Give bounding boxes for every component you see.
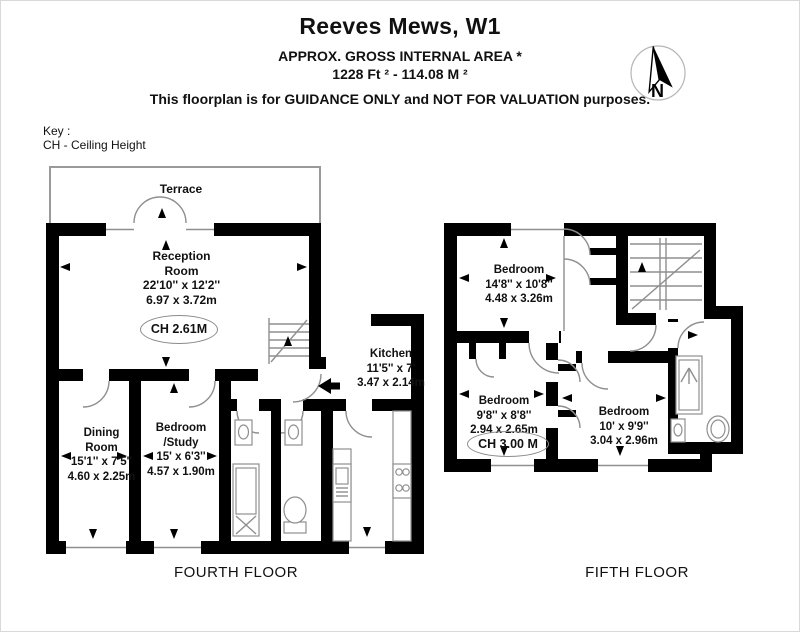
- page-title: Reeves Mews, W1: [1, 13, 799, 40]
- toilet-icon: [284, 497, 306, 533]
- room-label-reception: Reception Room 22'10'' x 12'2'' 6.97 x 3…: [119, 249, 244, 307]
- key-entry-ceiling-height: CH - Ceiling Height: [43, 138, 146, 152]
- room-label-kitchen: Kitchen 11'5'' x 7' 3.47 x 2.14m: [337, 347, 445, 391]
- staircase-icon: [630, 238, 702, 310]
- ceiling-height-bedroom-2: CH 3.00 M: [467, 431, 549, 457]
- floorplan-page: Reeves Mews, W1 APPROX. GROSS INTERNAL A…: [0, 0, 800, 632]
- stove-icon: [393, 464, 411, 498]
- toilet-icon: [707, 416, 729, 442]
- fifth-floor-label: FIFTH FLOOR: [537, 564, 737, 581]
- room-label-bedroom-3: Bedroom 10' x 9'9'' 3.04 x 2.96m: [564, 405, 684, 449]
- room-label-terrace: Terrace: [121, 182, 241, 197]
- key-block: Key : CH - Ceiling Height: [43, 124, 146, 152]
- north-compass-icon: N: [624, 39, 692, 107]
- staircase-icon: [269, 318, 309, 364]
- fourth-floor-label: FOURTH FLOOR: [136, 564, 336, 581]
- sink-icon: [285, 420, 302, 445]
- key-title: Key :: [43, 124, 146, 138]
- room-label-bedroom-1: Bedroom 14'8'' x 10'8'' 4.48 x 3.26m: [458, 263, 580, 307]
- north-letter: N: [651, 81, 664, 101]
- kitchen-sink-icon: [333, 464, 351, 502]
- ceiling-height-reception: CH 2.61M: [140, 315, 218, 344]
- room-label-bedroom-study: Bedroom /Study 15' x 6'3'' 4.57 x 1.90m: [123, 421, 239, 479]
